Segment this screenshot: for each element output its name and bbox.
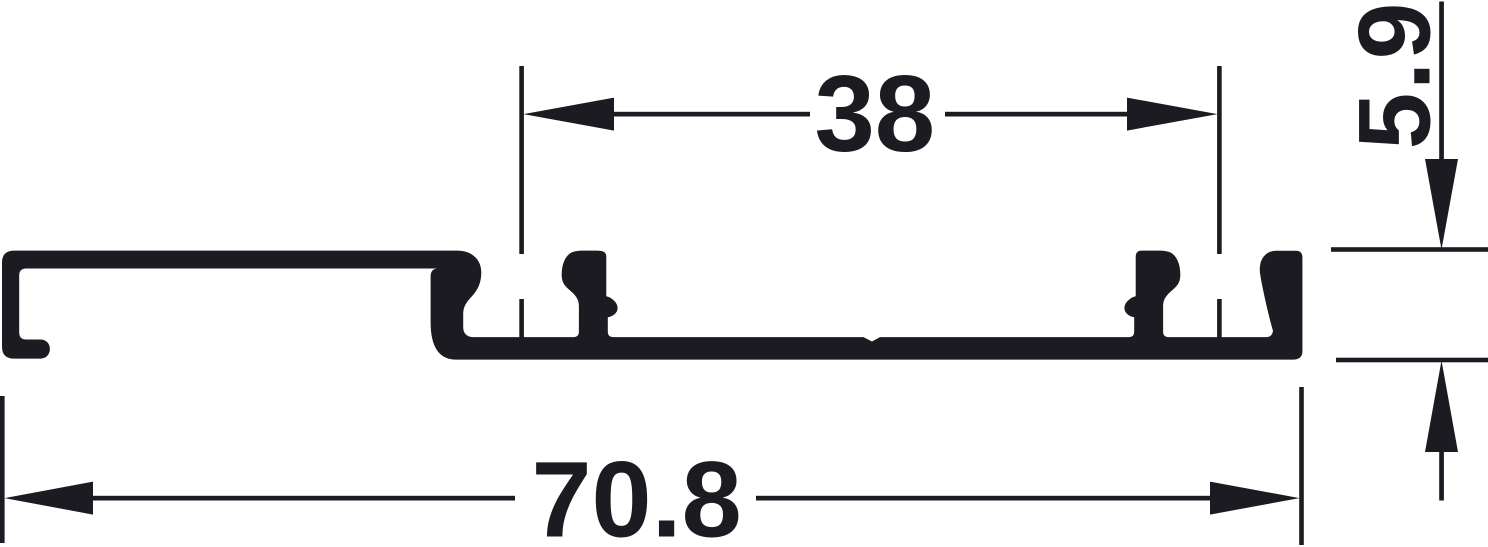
svg-text:5.9: 5.9 [1338, 0, 1452, 149]
svg-text:70.8: 70.8 [531, 438, 741, 547]
svg-text:38: 38 [814, 53, 935, 174]
